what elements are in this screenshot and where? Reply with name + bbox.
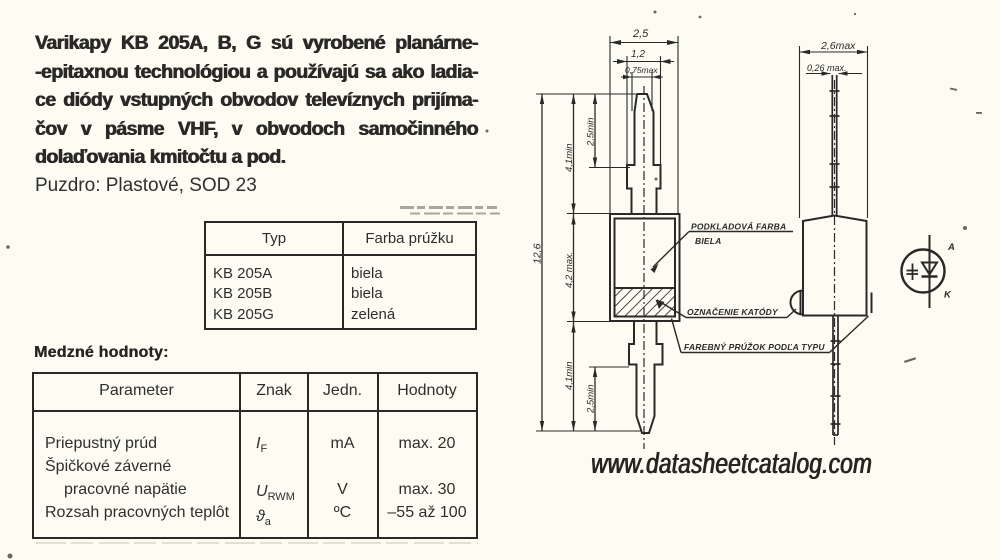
svg-text:2,5min: 2,5min (586, 117, 597, 147)
svg-text:K: K (944, 290, 952, 301)
svg-text:FAREBNÝ PRÚŽOK PODĽA TYPU: FAREBNÝ PRÚŽOK PODĽA TYPU (684, 341, 825, 352)
svg-text:A: A (947, 242, 955, 253)
svg-text:1,2: 1,2 (631, 49, 645, 60)
svg-text:4,1min: 4,1min (564, 361, 575, 390)
svg-text:OZNAČENIE KATÓDY: OZNAČENIE KATÓDY (687, 306, 779, 317)
svg-text:12,6: 12,6 (532, 243, 544, 264)
svg-text:2,5: 2,5 (632, 28, 649, 40)
svg-text:0,75max: 0,75max (625, 65, 658, 75)
svg-text:2,5min: 2,5min (586, 384, 597, 414)
svg-text:4,2 max.: 4,2 max. (564, 252, 575, 288)
svg-text:2,6max: 2,6max (820, 40, 856, 52)
svg-text:4,1min: 4,1min (564, 143, 575, 172)
svg-text:0,26 max.: 0,26 max. (807, 63, 847, 73)
svg-text:BIELA: BIELA (695, 236, 722, 246)
svg-text:PODKLADOVÁ FARBA: PODKLADOVÁ FARBA (691, 222, 786, 232)
